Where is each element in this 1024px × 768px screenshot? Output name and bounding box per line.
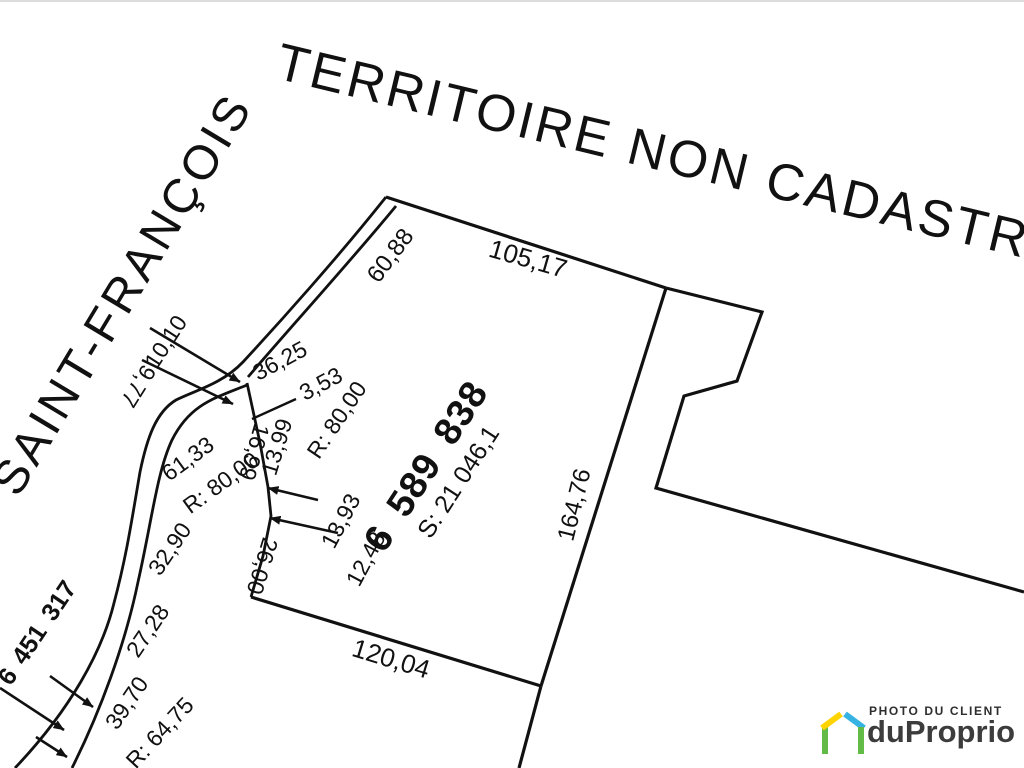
lot-pointer-arrow-1: [50, 676, 93, 707]
lot-east-boundary: [541, 288, 666, 686]
lot-pointer-arrow-2: [0, 688, 64, 730]
boundary-south-continuation: [519, 686, 541, 768]
lot-pointer-arrow-3: [36, 737, 67, 757]
cadastral-plan: TERRITOIRE NON CADASTRÉ SAINT-FRANÇOIS U…: [0, 0, 1024, 768]
dimension-arrow-13-93: [268, 488, 318, 500]
duproprio-wordmark: duProprio: [867, 714, 1015, 750]
duproprio-watermark: PHOTO DU CLIENT duProprio: [812, 698, 1024, 762]
duproprio-house-icon: [820, 710, 866, 756]
territory-boundary: [656, 288, 1024, 592]
